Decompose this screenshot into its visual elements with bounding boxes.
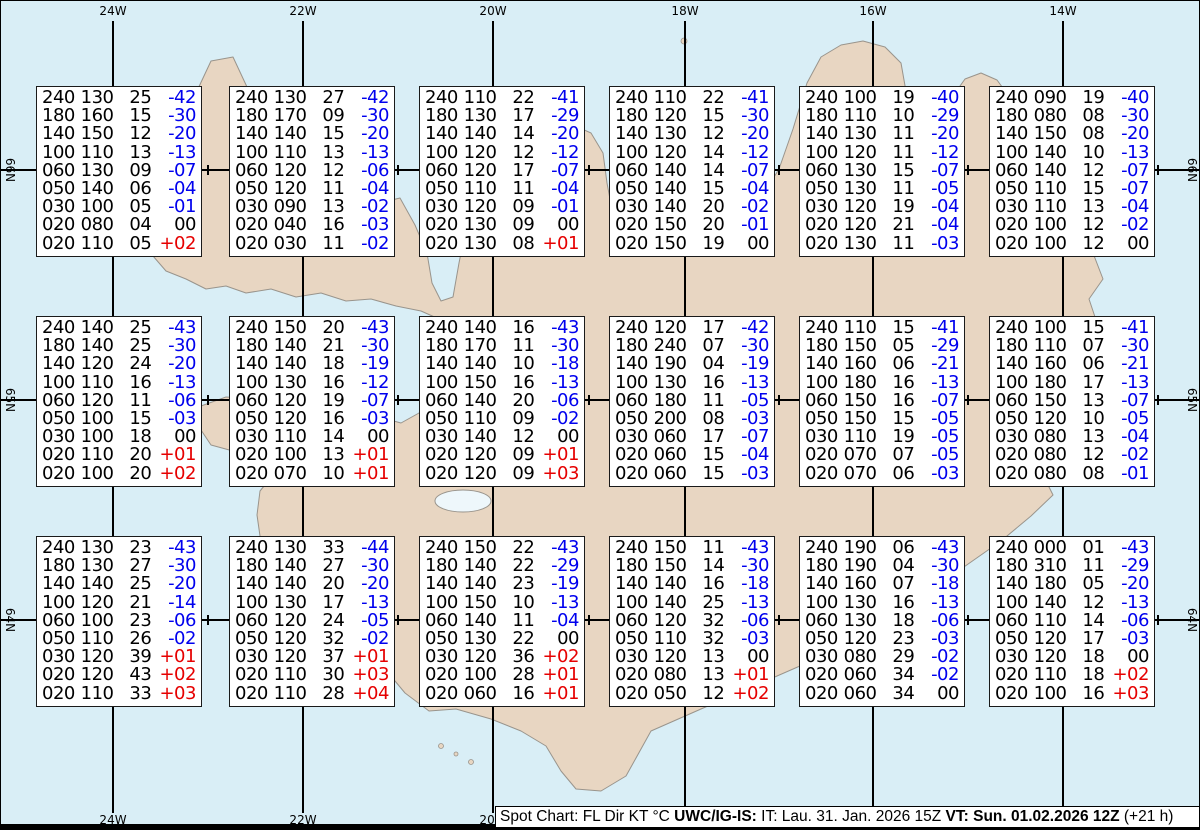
longitude-label-top: 22W [289,4,316,18]
wind-speed-kt: 12 [1078,216,1104,234]
wind-speed-kt: 06 [888,355,914,373]
wind-speed-kt: 19 [698,235,724,253]
wind-direction: 120 [464,446,506,464]
flight-level: 020 [235,446,271,464]
wind-direction: 110 [81,446,123,464]
wind-speed-kt: 15 [698,465,724,483]
wind-direction: 180 [1034,575,1076,593]
spot-data-row: 02008008-01 [995,465,1149,483]
spot-box: 24019006-4318019004-3014016007-181001301… [799,536,965,707]
temperature-c: +01 [537,446,579,464]
flight-level: 140 [42,355,78,373]
spot-data-row: 02013008+01 [425,235,579,253]
wind-direction: 050 [654,685,696,703]
spot-data-row: 02011020+01 [42,446,196,464]
spot-data-row: 14014010-18 [425,355,579,373]
wind-direction: 140 [274,125,316,143]
spot-data-row: 14019004-19 [615,355,769,373]
temperature-c: +02 [1107,666,1149,684]
graticule-tick [778,615,780,625]
wind-direction: 140 [654,575,696,593]
graticule-tick [207,165,209,175]
wind-speed-kt: 09 [508,216,534,234]
graticule-tick [967,615,969,625]
spot-data-row: 14015008-20 [995,125,1149,143]
spot-box: 24011022-4118012015-3014013012-201001201… [609,86,775,257]
spot-data-row: 14014023-19 [425,575,579,593]
spot-data-row: 02011030+03 [235,666,389,684]
wind-speed-kt: 20 [698,216,724,234]
wind-direction: 140 [464,125,506,143]
flight-level: 020 [42,446,78,464]
wind-direction: 130 [654,125,696,143]
spot-data-row: 0201001200 [995,235,1149,253]
wind-direction: 100 [1034,685,1076,703]
wind-direction: 190 [654,355,696,373]
spot-box: 24015011-4318015014-3014014016-181001402… [609,536,775,707]
wind-speed-kt: 28 [508,666,534,684]
spot-data-row: 0200603400 [805,685,959,703]
wind-speed-kt: 16 [1078,685,1104,703]
spot-box: 24009019-4018008008-3014015008-201001401… [989,86,1155,257]
longitude-label-top: 24W [99,4,126,18]
wind-direction: 100 [1034,216,1076,234]
graticule-tick [967,165,969,175]
temperature-c: +02 [154,465,196,483]
temperature-c: +02 [154,666,196,684]
graticule-tick [778,395,780,405]
wind-direction: 140 [274,575,316,593]
spot-data-row: 0201300900 [425,216,579,234]
temperature-c: 00 [1107,235,1149,253]
flight-level: 140 [42,575,78,593]
temperature-c: +01 [347,465,389,483]
spot-data-row: 14012024-20 [42,355,196,373]
flight-level: 020 [615,465,651,483]
island [439,744,444,749]
flight-level: 020 [235,235,271,253]
temperature-c: -03 [347,216,389,234]
wind-speed-kt: 10 [508,355,534,373]
temperature-c: +04 [347,685,389,703]
flight-level: 140 [615,575,651,593]
flight-level: 020 [235,666,271,684]
spot-data-row: 14016007-18 [805,575,959,593]
spot-box: 24015022-4318014022-2914014023-191001501… [419,536,585,707]
graticule-tick [588,615,590,625]
wind-direction: 110 [274,685,316,703]
wind-direction: 100 [464,666,506,684]
flight-level: 140 [615,125,651,143]
spot-data-row: 14014015-20 [235,125,389,143]
flight-level: 140 [995,575,1031,593]
graticule-tick [397,615,399,625]
spot-box: 24011022-4118013017-2914014014-201001201… [419,86,585,257]
wind-speed-kt: 05 [125,235,151,253]
wind-direction: 140 [464,575,506,593]
spot-box: 24014016-4318017011-3014014010-181001501… [419,316,585,487]
wind-speed-kt: 18 [318,355,344,373]
spot-data-row: 14015012-20 [42,125,196,143]
wind-direction: 120 [844,216,886,234]
wind-speed-kt: 12 [1078,446,1104,464]
spot-box: 24000001-4318031011-2914018005-201001401… [989,536,1155,707]
temperature-c: -21 [917,355,959,373]
wind-speed-kt: 20 [318,575,344,593]
spot-data-row: 14013011-20 [805,125,959,143]
wind-direction: 080 [81,216,123,234]
spot-data-row: 02006015-03 [615,465,769,483]
temperature-c: -20 [154,355,196,373]
wind-speed-kt: 20 [125,446,151,464]
wind-direction: 060 [654,446,696,464]
wind-speed-kt: 20 [125,465,151,483]
spot-data-row: 02007006-03 [805,465,959,483]
temperature-c: -19 [727,355,769,373]
latitude-label-right: 65N [1185,388,1199,412]
wind-speed-kt: 14 [508,125,534,143]
lake [435,490,491,512]
flight-level: 020 [425,235,461,253]
wind-speed-kt: 04 [125,216,151,234]
temperature-c: +01 [727,666,769,684]
temperature-c: -02 [347,235,389,253]
wind-direction: 110 [1034,666,1076,684]
latitude-label-left: 65N [3,388,17,412]
spot-box: 24013027-4218017009-3014014015-201001101… [229,86,395,257]
graticule-tick [397,165,399,175]
flight-level: 020 [995,446,1031,464]
spot-data-row: 02011005+02 [42,235,196,253]
wind-speed-kt: 12 [698,685,724,703]
wind-direction: 150 [81,125,123,143]
spot-data-row: 02006016+01 [425,685,579,703]
wind-direction: 060 [844,666,886,684]
temperature-c: +03 [1107,685,1149,703]
spot-data-row: 02010028+01 [425,666,579,684]
spot-data-row: 02010020+02 [42,465,196,483]
flight-level: 020 [425,216,461,234]
temperature-c: +02 [727,685,769,703]
temperature-c: -20 [537,125,579,143]
wind-direction: 140 [464,355,506,373]
wind-speed-kt: 23 [508,575,534,593]
spot-box: 24015020-4318014021-3014014018-191001301… [229,316,395,487]
temperature-c: +02 [154,235,196,253]
spot-data-row: 02008013+01 [615,666,769,684]
temperature-c: +01 [537,685,579,703]
flight-level: 140 [805,575,841,593]
wind-direction: 070 [274,465,316,483]
wind-direction: 130 [844,125,886,143]
graticule-tick [588,395,590,405]
spot-chart-canvas: 24W24W22W22W20W20W18W18W16W16W14W14W66N6… [0,0,1200,830]
wind-direction: 120 [464,465,506,483]
graticule-tick [1157,395,1159,405]
temperature-c: -20 [154,125,196,143]
wind-speed-kt: 30 [318,666,344,684]
flight-level: 020 [805,465,841,483]
flight-level: 020 [425,446,461,464]
wind-speed-kt: 11 [318,235,344,253]
temperature-c: -05 [917,446,959,464]
longitude-label-top: 16W [859,4,886,18]
temperature-c: +01 [154,446,196,464]
spot-data-row: 14016006-21 [805,355,959,373]
spot-data-row: 0201501900 [615,235,769,253]
wind-direction: 060 [654,465,696,483]
temperature-c: 00 [917,685,959,703]
flight-level: 140 [995,125,1031,143]
wind-speed-kt: 08 [508,235,534,253]
spot-data-row: 02012043+02 [42,666,196,684]
wind-direction: 140 [81,575,123,593]
temperature-c: -04 [917,216,959,234]
spot-data-row: 14014025-20 [42,575,196,593]
wind-speed-kt: 08 [1078,465,1104,483]
flight-level: 020 [42,685,78,703]
wind-speed-kt: 09 [508,446,534,464]
wind-speed-kt: 07 [888,446,914,464]
temperature-c: -20 [154,575,196,593]
temperature-c: -19 [347,355,389,373]
graticule-tick [207,615,209,625]
flight-level: 020 [995,685,1031,703]
wind-speed-kt: 16 [318,216,344,234]
longitude-label-top: 20W [479,4,506,18]
flight-level: 140 [425,125,461,143]
wind-direction: 060 [464,685,506,703]
temperature-c: +03 [154,685,196,703]
spot-data-row: 02011033+03 [42,685,196,703]
spot-data-row: 0200800400 [42,216,196,234]
wind-direction: 150 [654,235,696,253]
wind-direction: 160 [844,355,886,373]
flight-level: 020 [805,685,841,703]
wind-speed-kt: 28 [318,685,344,703]
temperature-c: -01 [727,216,769,234]
latitude-label-right: 64N [1185,608,1199,632]
wind-direction: 110 [274,666,316,684]
flight-level: 140 [235,355,271,373]
temperature-c: -21 [1107,355,1149,373]
spot-data-row: 02007010+01 [235,465,389,483]
wind-direction: 100 [1034,235,1076,253]
graticule-tick [778,165,780,175]
flight-level: 140 [805,355,841,373]
caption-office: UWC/IG-IS: [674,808,757,826]
flight-level: 020 [995,235,1031,253]
temperature-c: -18 [727,575,769,593]
spot-data-row: 02015020-01 [615,216,769,234]
wind-direction: 100 [81,465,123,483]
spot-data-row: 02005012+02 [615,685,769,703]
graticule-tick [967,395,969,405]
wind-direction: 030 [274,235,316,253]
spot-box: 24012017-4218024007-3014019004-191001301… [609,316,775,487]
spot-data-row: 14014018-19 [235,355,389,373]
temperature-c: -03 [917,235,959,253]
temperature-c: -20 [347,575,389,593]
wind-direction: 070 [844,446,886,464]
flight-level: 020 [42,465,78,483]
temperature-c: +01 [537,666,579,684]
longitude-label-top: 18W [671,4,698,18]
temperature-c: +01 [347,446,389,464]
temperature-c: +03 [537,465,579,483]
wind-speed-kt: 13 [318,446,344,464]
wind-direction: 120 [81,355,123,373]
latitude-label-left: 66N [3,158,17,182]
wind-speed-kt: 12 [125,125,151,143]
wind-direction: 120 [81,666,123,684]
spot-box: 24014025-4318014025-3014012024-201001101… [36,316,202,487]
wind-speed-kt: 05 [1078,575,1104,593]
flight-level: 020 [235,465,271,483]
wind-direction: 110 [81,685,123,703]
wind-speed-kt: 25 [125,575,151,593]
longitude-label-top: 14W [1049,4,1076,18]
wind-direction: 130 [844,235,886,253]
wind-speed-kt: 04 [698,355,724,373]
flight-level: 140 [615,355,651,373]
wind-direction: 150 [654,216,696,234]
temperature-c: -02 [1107,216,1149,234]
temperature-c: -19 [537,575,579,593]
flight-level: 020 [805,446,841,464]
wind-speed-kt: 06 [1078,355,1104,373]
flight-level: 020 [615,685,651,703]
temperature-c: -01 [1107,465,1149,483]
spot-data-row: 02008012-02 [995,446,1149,464]
wind-speed-kt: 33 [125,685,151,703]
spot-data-row: 02004016-03 [235,216,389,234]
flight-level: 020 [995,216,1031,234]
spot-box: 24013023-4318013027-3014014025-201001202… [36,536,202,707]
spot-data-row: 14014016-18 [615,575,769,593]
wind-speed-kt: 24 [125,355,151,373]
graticule-tick [207,395,209,405]
wind-direction: 080 [654,666,696,684]
flight-level: 020 [235,685,271,703]
flight-level: 020 [995,465,1031,483]
wind-speed-kt: 15 [698,446,724,464]
spot-data-row: 02010012-02 [995,216,1149,234]
wind-speed-kt: 16 [508,685,534,703]
wind-speed-kt: 21 [888,216,914,234]
temperature-c: -20 [1107,125,1149,143]
wind-speed-kt: 10 [318,465,344,483]
temperature-c: -20 [1107,575,1149,593]
chart-caption: Spot Chart: FL Dir KT °C UWC/IG-IS: IT: … [495,806,1200,828]
spot-data-row: 02012021-04 [805,216,959,234]
wind-speed-kt: 34 [888,666,914,684]
wind-speed-kt: 34 [888,685,914,703]
graticule-tick [1157,165,1159,175]
spot-data-row: 02007007-05 [805,446,959,464]
flight-level: 020 [615,446,651,464]
latitude-label-left: 64N [3,608,17,632]
spot-data-row: 02010013+01 [235,446,389,464]
spot-data-row: 14013012-20 [615,125,769,143]
spot-box: 24013025-4218016015-3014015012-201001101… [36,86,202,257]
flight-level: 020 [235,216,271,234]
spot-data-row: 14016006-21 [995,355,1149,373]
flight-level: 020 [805,216,841,234]
wind-direction: 130 [464,216,506,234]
wind-speed-kt: 06 [888,465,914,483]
flight-level: 020 [615,216,651,234]
wind-direction: 080 [1034,446,1076,464]
flight-level: 140 [235,575,271,593]
wind-direction: 160 [844,575,886,593]
spot-box: 24010019-4018011010-2914013011-201001201… [799,86,965,257]
wind-direction: 080 [1034,465,1076,483]
wind-direction: 040 [274,216,316,234]
island [469,760,474,765]
temperature-c: 00 [154,216,196,234]
spot-data-row: 02012009+03 [425,465,579,483]
spot-data-row: 02006015-04 [615,446,769,464]
wind-direction: 150 [1034,125,1076,143]
temperature-c: -02 [1107,446,1149,464]
temperature-c: -02 [917,666,959,684]
temperature-c: -04 [727,446,769,464]
spot-data-row: 02011028+04 [235,685,389,703]
spot-box: 24010015-4118011007-3014016006-211001801… [989,316,1155,487]
spot-data-row: 14018005-20 [995,575,1149,593]
wind-direction: 160 [1034,355,1076,373]
flight-level: 140 [805,125,841,143]
flight-level: 020 [615,235,651,253]
wind-speed-kt: 09 [508,465,534,483]
flight-level: 020 [42,216,78,234]
spot-box: 24013033-4418014027-3014014020-201001301… [229,536,395,707]
wind-speed-kt: 43 [125,666,151,684]
wind-direction: 060 [844,685,886,703]
flight-level: 020 [425,465,461,483]
graticule-tick [397,395,399,405]
wind-direction: 070 [844,465,886,483]
wind-speed-kt: 12 [698,125,724,143]
wind-direction: 100 [274,446,316,464]
temperature-c: -18 [917,575,959,593]
flight-level: 020 [42,666,78,684]
flight-level: 020 [42,235,78,253]
wind-speed-kt: 11 [888,235,914,253]
caption-valid-time: VT: Sun. 01.02.2026 12Z [946,808,1120,826]
flight-level: 020 [805,666,841,684]
wind-speed-kt: 16 [698,575,724,593]
spot-data-row: 14014014-20 [425,125,579,143]
latitude-label-right: 66N [1185,158,1199,182]
island [454,752,458,756]
wind-speed-kt: 18 [1078,666,1104,684]
caption-forecast-offset: (+21 h) [1120,808,1174,826]
spot-data-row: 02006034-02 [805,666,959,684]
spot-data-row: 02003011-02 [235,235,389,253]
spot-data-row: 02013011-03 [805,235,959,253]
temperature-c: -18 [537,355,579,373]
spot-data-row: 02010016+03 [995,685,1149,703]
flight-level: 020 [425,666,461,684]
spot-data-row: 02011018+02 [995,666,1149,684]
graticule-tick [1157,615,1159,625]
flight-level: 140 [425,575,461,593]
flight-level: 140 [235,125,271,143]
wind-speed-kt: 13 [698,666,724,684]
temperature-c: -03 [917,465,959,483]
